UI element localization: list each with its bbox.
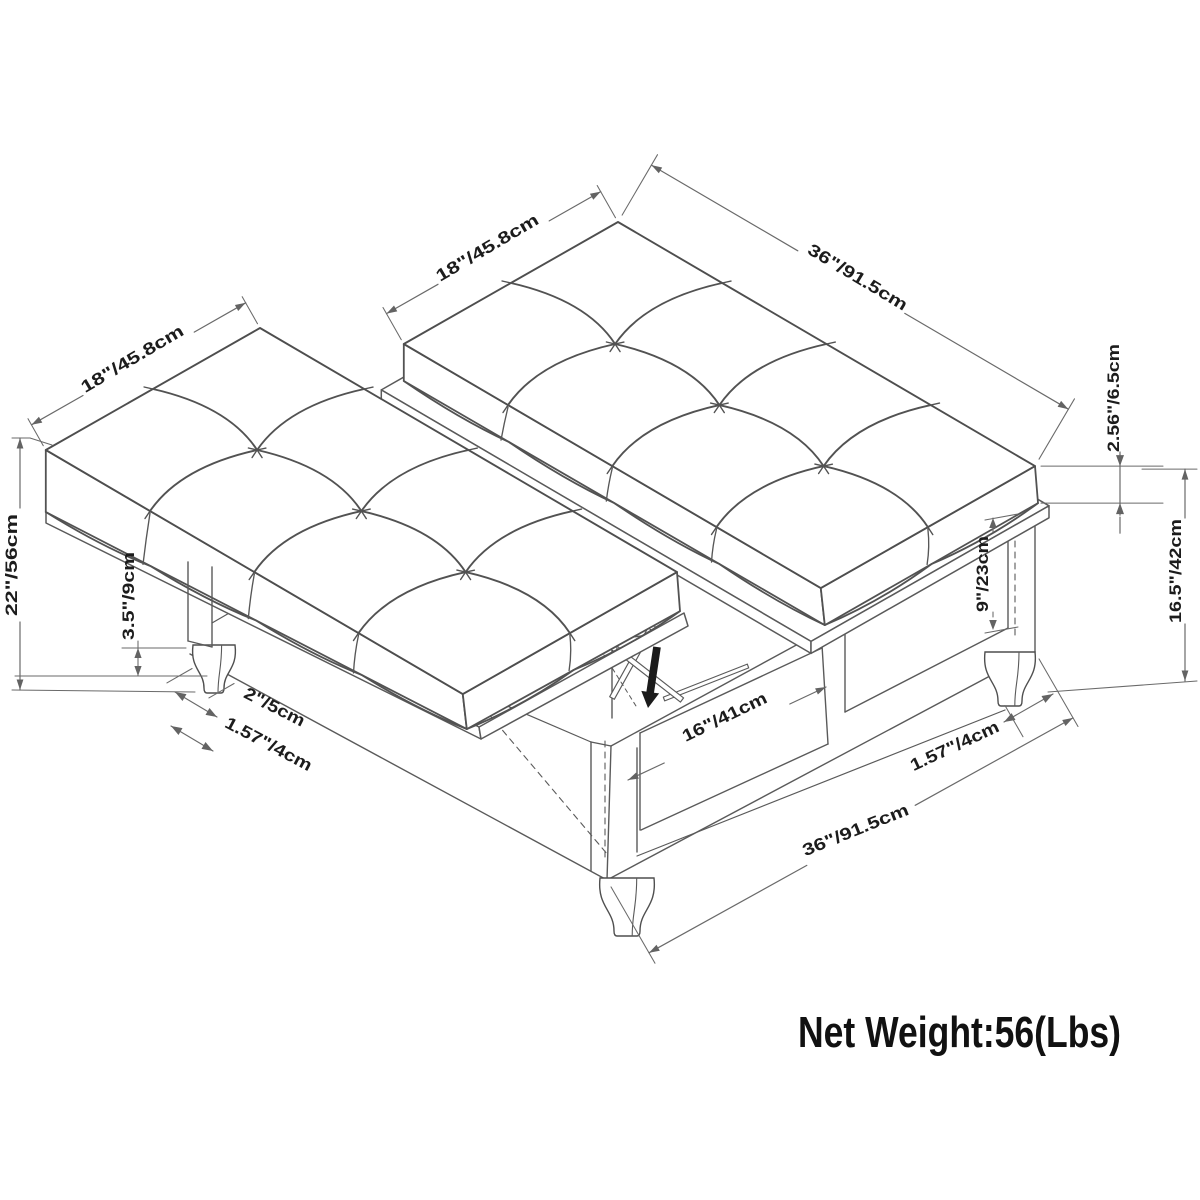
svg-text:9"/23cm: 9"/23cm <box>973 536 992 612</box>
svg-text:22"/56cm: 22"/56cm <box>2 514 21 616</box>
svg-text:16.5"/42cm: 16.5"/42cm <box>1166 519 1185 623</box>
svg-text:3.5"/9cm: 3.5"/9cm <box>119 552 138 640</box>
svg-text:2.56"/6.5cm: 2.56"/6.5cm <box>1104 344 1123 452</box>
svg-text:Net Weight:56(Lbs): Net Weight:56(Lbs) <box>798 1008 1121 1057</box>
